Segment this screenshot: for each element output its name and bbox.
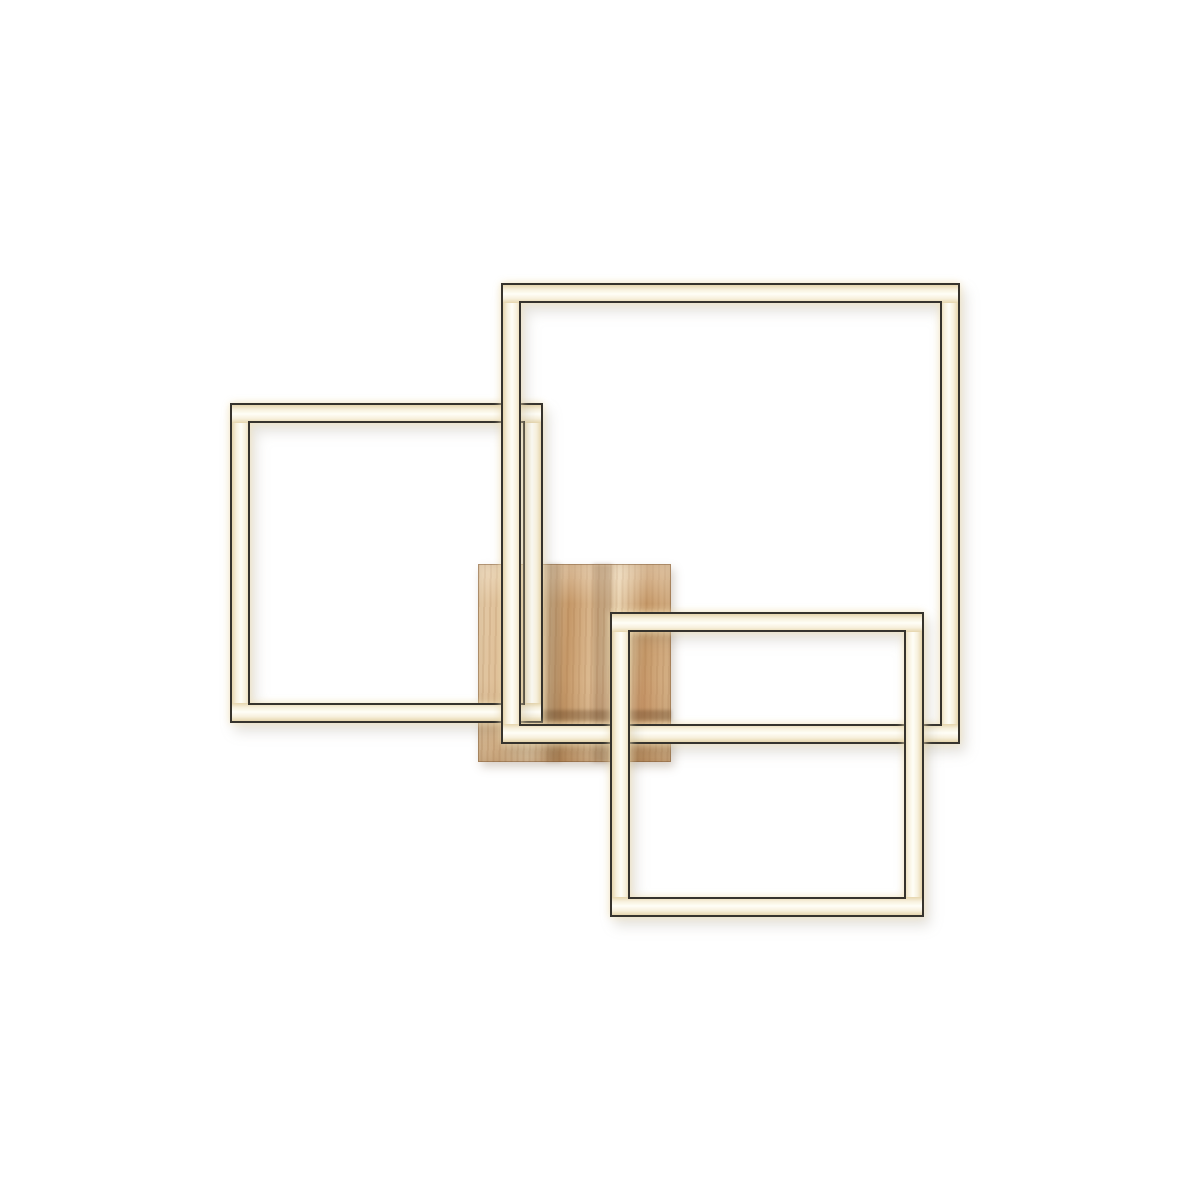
frame-band-right <box>904 632 922 897</box>
frame-band-left <box>232 423 250 703</box>
product-photo-canvas <box>0 0 1200 1200</box>
frame-band-right <box>940 303 958 724</box>
frame-band-left <box>612 632 630 897</box>
led-frame-medium <box>232 405 541 721</box>
frame-band-top <box>612 614 922 632</box>
frame-band-bottom <box>232 703 541 721</box>
led-frame-small <box>612 614 922 915</box>
frame-band-top <box>232 405 541 423</box>
frame-band-bottom <box>612 897 922 915</box>
frame-band-top <box>503 285 958 303</box>
frame-band-left <box>503 303 521 724</box>
